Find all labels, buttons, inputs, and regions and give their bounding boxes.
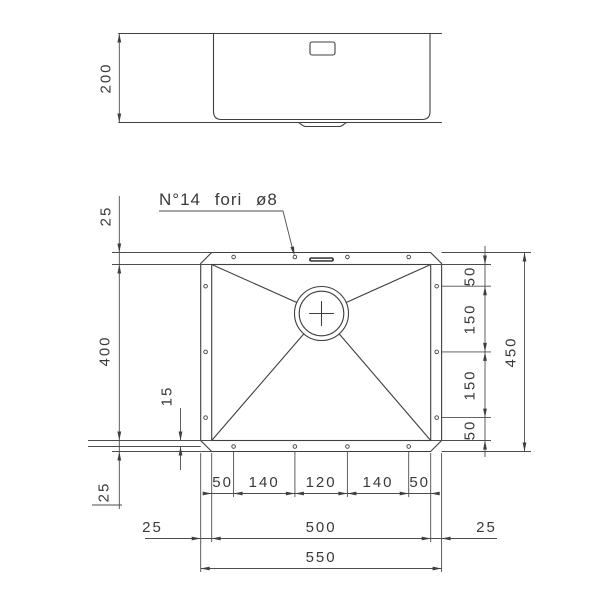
mounting-hole bbox=[293, 445, 297, 449]
mounting-hole bbox=[232, 255, 236, 259]
dim-bowl-width-label: 500 bbox=[306, 519, 337, 536]
dim-hole-spacing-label: 50 bbox=[212, 474, 233, 491]
mounting-hole bbox=[435, 350, 439, 354]
mounting-hole bbox=[346, 445, 350, 449]
mounting-hole bbox=[232, 445, 236, 449]
dim-hole-spacing-label: 120 bbox=[306, 474, 337, 491]
dim-rim-left-label: 25 bbox=[142, 519, 163, 536]
mounting-hole bbox=[293, 255, 297, 259]
dim-overall-width-label: 550 bbox=[306, 549, 337, 566]
mounting-hole bbox=[407, 255, 411, 259]
dim-hole-inset-label: 15 bbox=[159, 386, 176, 407]
mounting-hole bbox=[435, 284, 439, 288]
dim-hole-mid1-label: 150 bbox=[462, 303, 479, 334]
dim-hole-spacing-label: 140 bbox=[249, 474, 280, 491]
dim-bowl-height-label: 400 bbox=[97, 335, 114, 366]
dim-rim-right-label: 25 bbox=[476, 519, 497, 536]
sheet-background bbox=[0, 0, 600, 600]
dim-hole-bottom-label: 50 bbox=[462, 420, 479, 441]
dim-hole-spacing-label: 50 bbox=[409, 474, 430, 491]
mounting-hole bbox=[407, 445, 411, 449]
drawing-sheet: 200 N°14 fori ø8 bbox=[0, 0, 600, 600]
technical-drawing: 200 N°14 fori ø8 bbox=[0, 0, 600, 600]
mounting-hole bbox=[204, 350, 208, 354]
dim-hole-top-label: 50 bbox=[462, 266, 479, 287]
dim-overall-height-label: 450 bbox=[503, 336, 520, 367]
dim-depth-label: 200 bbox=[98, 62, 115, 93]
mounting-hole bbox=[435, 416, 439, 420]
mounting-hole bbox=[204, 284, 208, 288]
dim-hole-mid2-label: 150 bbox=[462, 369, 479, 400]
dim-rim-bottom-label: 25 bbox=[96, 482, 113, 503]
holes-note-label: N°14 fori ø8 bbox=[159, 190, 278, 209]
overflow-slot bbox=[309, 257, 334, 262]
dim-hole-spacing-label: 140 bbox=[362, 474, 393, 491]
mounting-hole bbox=[346, 255, 350, 259]
mounting-hole bbox=[204, 416, 208, 420]
dim-rim-top-label: 25 bbox=[98, 206, 115, 227]
